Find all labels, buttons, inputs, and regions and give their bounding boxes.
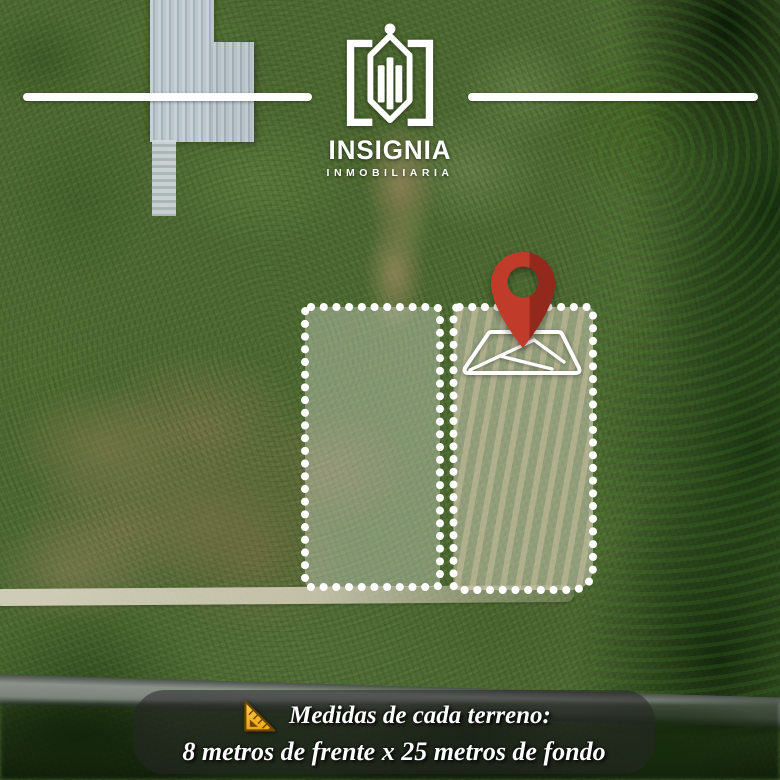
caption-panel: Medidas de cada terreno: 8 metros de fre… — [133, 690, 655, 774]
plot-boundaries — [0, 0, 780, 780]
caption-heading-row: Medidas de cada terreno: — [237, 697, 551, 735]
caption-detail: 8 metros de frente x 25 metros de fondo — [182, 738, 605, 767]
triangle-ruler-icon — [237, 697, 279, 735]
plot-left-boundary — [305, 307, 440, 587]
location-pin-icon — [489, 250, 557, 350]
real-estate-post: INSIGNIA INMOBILIARIA — [0, 0, 780, 780]
caption-heading: Medidas de cada terreno: — [289, 702, 551, 730]
